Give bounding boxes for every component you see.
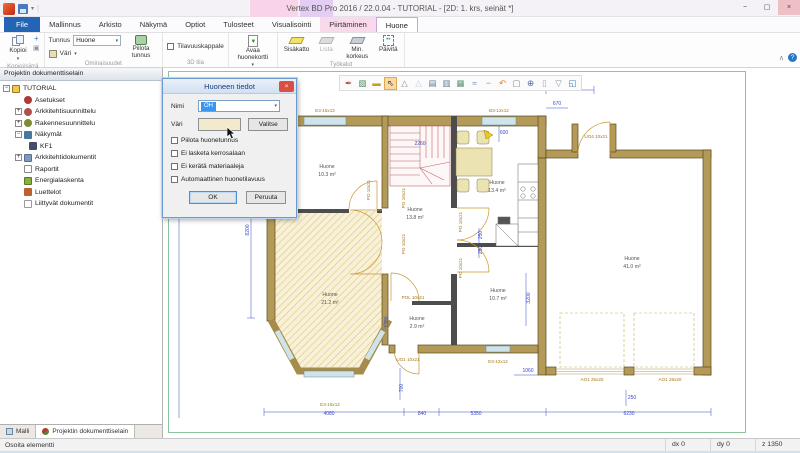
collapse-box-icon[interactable]: − [3, 85, 10, 92]
tilavuuskappale-label: Tilavuuskappale [177, 43, 224, 50]
plan-label: 250 [478, 231, 484, 240]
help-icon[interactable]: ? [788, 53, 797, 62]
plan-label: 10.3 m² [318, 172, 336, 178]
plan-label: 250 [478, 246, 484, 255]
folder-icon [12, 85, 20, 93]
expand-box-icon[interactable]: + [15, 154, 22, 161]
tunnus-label: Tunnus [49, 37, 70, 44]
sisakatto-button[interactable]: Sisäkatto [282, 34, 311, 55]
app-logo-icon [3, 3, 15, 15]
plan-label: PO 10x21 [401, 233, 406, 254]
ribbon-group-kopioi: Kopioi ▾ + ▣ Kopioi/siirrä [2, 33, 45, 67]
living-room-fill [275, 211, 382, 370]
tab-huone[interactable]: Huone [376, 17, 418, 32]
tab-visualisointi[interactable]: Visualisointi [263, 17, 320, 32]
select-box-icon[interactable]: ▧ [356, 77, 369, 90]
plan-label: PO 10x21 [366, 179, 371, 200]
plan-label: AO1 25x20 [659, 377, 682, 382]
plan-label: PO 10x21 [401, 187, 406, 208]
plan-label: Huone [407, 207, 422, 213]
plan-label: 700 [399, 384, 405, 393]
plan-label: 21.2 m² [321, 300, 339, 306]
ok-button[interactable]: OK [189, 191, 237, 204]
close-button[interactable]: × [778, 0, 800, 15]
project-tree: − TUTORIAL Asetukset + Arkkitehtisuunnit… [0, 81, 162, 424]
caret-down-icon: ▾ [274, 103, 277, 109]
kitchen-furniture [456, 130, 493, 192]
plan-label: E3-15x12 [320, 402, 340, 407]
document-icon [24, 200, 32, 208]
ribbon-group-huonekortti: Avaa huonekortti ▾ [229, 33, 278, 67]
filter-icon[interactable]: ▽ [552, 77, 565, 90]
room-name-value: OH [201, 102, 216, 111]
cancel-button[interactable]: Peruuta [246, 191, 286, 204]
plan-label: 13.4 m² [488, 188, 506, 194]
external-view-icon[interactable]: ◱ [566, 77, 579, 90]
plan-label: 4080 [323, 411, 334, 417]
report-icon [24, 165, 32, 173]
plan-label: 5350 [470, 411, 481, 417]
move-button[interactable]: + [33, 35, 40, 43]
tree-item-energialaskenta[interactable]: Energialaskenta [0, 175, 162, 187]
color-chip-icon [49, 50, 57, 58]
garage-doors [556, 313, 694, 374]
tree-item-tutorial[interactable]: − TUTORIAL [0, 83, 162, 95]
lista-button[interactable]: Lista [314, 34, 338, 55]
nimi-label: Nimi [171, 103, 198, 110]
tab-tulosteet[interactable]: Tulosteet [214, 17, 263, 32]
triangle-alt-icon[interactable]: △ [412, 77, 425, 90]
status-hint: Osoita elementti [0, 442, 665, 449]
status-z: z 1350 [755, 439, 800, 451]
list-slab-icon [318, 37, 334, 44]
status-bar: Osoita elementti dx 0 dy 0 z 1350 [0, 438, 800, 451]
maximize-button[interactable]: ▢ [756, 0, 778, 15]
plan-label: E3-15x12 [315, 108, 335, 113]
collapse-ribbon-icon[interactable]: ∧ [779, 54, 784, 62]
plan-label: 6230 [623, 411, 634, 417]
copy-button[interactable]: Kopioi ▾ [6, 34, 30, 63]
tree-item-luettelot[interactable]: Luettelot [0, 187, 162, 199]
project-browser-icon [42, 428, 49, 435]
checkbox-icon [171, 150, 178, 157]
plan-label: 1380 [384, 316, 390, 327]
plan-label: Huone [409, 316, 424, 322]
expand-box-icon[interactable]: + [15, 120, 22, 127]
min-korkeus-button[interactable]: Min. korkeus [341, 34, 373, 61]
sheet-icon[interactable]: ▯ [538, 77, 551, 90]
avaa-huonekortti-button[interactable]: Avaa huonekortti ▾ [233, 34, 273, 70]
room-name-select[interactable]: OH ▾ [198, 100, 280, 112]
checkbox-icon [171, 163, 178, 170]
plan-label: 13.8 m² [406, 215, 424, 221]
quick-access-caret-icon[interactable]: ▾ [31, 5, 34, 12]
plan-label: 2260 [414, 141, 425, 147]
lists-icon [24, 188, 32, 196]
tree-item-liittyvat-dokumentit[interactable]: Liittyvät dokumentit [0, 198, 162, 210]
application-window: ▾ | Vertex BD Pro 2016 / 22.0.04 - TUTOR… [0, 0, 800, 453]
tilavuuskappale-checkbox[interactable] [167, 43, 174, 50]
ceiling-icon [288, 37, 304, 44]
min-height-icon [349, 37, 365, 44]
ribbon-tab-bar: File Mallinnus Arkisto Näkymä Optiot Tul… [0, 17, 800, 33]
layers3-icon[interactable]: ▦ [454, 77, 467, 90]
tree-item-nakymat[interactable]: − Näkymät [0, 129, 162, 141]
tab-arkisto[interactable]: Arkisto [90, 17, 131, 32]
structure-icon [24, 119, 32, 127]
views-icon [24, 131, 32, 139]
paivita-button[interactable]: •• Päivitä [376, 34, 400, 55]
ribbon-corner: ∧ ? [779, 53, 797, 62]
valitse-button[interactable]: Valitse [248, 118, 288, 131]
title-bar: ▾ | Vertex BD Pro 2016 / 22.0.04 - TUTOR… [0, 0, 800, 17]
energy-icon [24, 177, 32, 185]
kitchen-counter [496, 164, 538, 246]
window-controls: − ▢ × [734, 0, 800, 15]
sidebar-tab-bar: Malli Projektin dokumenttiselain [0, 424, 162, 438]
tab-piirtaminen[interactable]: Piirtäminen [320, 17, 376, 32]
plan-label: AO1 25x20 [581, 377, 604, 382]
tree-item-kf1[interactable]: KF1 [0, 141, 162, 153]
staircase [390, 126, 450, 186]
ribbon-group-label: Ominaisuudet [49, 60, 158, 68]
plan-label: 41.0 m² [623, 264, 641, 270]
tree-item-arkkitehtisuunnittelu[interactable]: + Arkkitehtisuunnittelu [0, 106, 162, 118]
huoneen-tiedot-dialog[interactable]: Huoneen tiedot × Nimi OH ▾ Väri Valitse [162, 78, 297, 218]
tab-optiot[interactable]: Optiot [176, 17, 214, 32]
checkbox-ei-lasketa-kerrosalaan[interactable]: Ei lasketa kerrosalaan [171, 150, 288, 157]
caret-down-icon: ▾ [116, 38, 119, 44]
tree-item-arkkitehtidokumentit[interactable]: + Arkkitehtidokumentit [0, 152, 162, 164]
separator: | [37, 4, 39, 13]
tab-mallinnus[interactable]: Mallinnus [40, 17, 90, 32]
cursor-icon[interactable]: ⇖ [384, 77, 397, 90]
ribbon: Kopioi ▾ + ▣ Kopioi/siirrä Tunnus Huone [0, 33, 800, 68]
plan-label: PO 10x21 [458, 257, 463, 278]
status-dx: dx 0 [665, 439, 710, 451]
tab-nakyma[interactable]: Näkymä [131, 17, 177, 32]
zoom-area-icon[interactable]: ▢ [510, 77, 523, 90]
sidebar: Projektin dokumenttiselain − TUTORIAL As… [0, 68, 163, 438]
architecture-icon [24, 108, 32, 116]
checkbox-icon [171, 137, 178, 144]
refresh-icon: •• [383, 35, 394, 46]
triangle-icon[interactable]: △ [398, 77, 411, 90]
plan-label: PO 10x21 [458, 211, 463, 232]
tab-projektin-dokumenttiselain[interactable]: Projektin dokumenttiselain [36, 425, 135, 438]
plan-label: Huone [319, 164, 334, 170]
gear-icon [24, 96, 32, 104]
plan-label: POL 10x21 [402, 295, 425, 300]
hide-tag-icon [135, 35, 147, 45]
ribbon-group-label: 3D tila [167, 59, 224, 67]
plan-label: 840 [418, 411, 427, 417]
status-dy: dy 0 [710, 439, 755, 451]
layers-icon[interactable]: ▤ [426, 77, 439, 90]
ribbon-group-3dtila: Tilavuuskappale 3D tila [163, 33, 229, 67]
plan-label: 250 [628, 395, 637, 401]
plan-label: 8200 [245, 224, 251, 235]
tree-item-raportit[interactable]: Raportit [0, 164, 162, 176]
undo-icon[interactable]: ↶ [496, 77, 509, 90]
plan-label: 10.7 m² [489, 296, 507, 302]
line-icon[interactable]: − [482, 77, 495, 90]
canvas-toolbar: ✒▧▬⇖△△▤▥▦≈−↶▢⊕▯▽◱ [339, 75, 582, 91]
model-icon [6, 428, 13, 435]
vari-label: Väri [171, 121, 198, 128]
plan-label: 1060 [522, 368, 533, 374]
view-icon [29, 142, 37, 150]
tab-file[interactable]: File [4, 17, 40, 32]
zoom-icon[interactable]: ⊕ [524, 77, 537, 90]
checkbox-icon [171, 176, 178, 183]
plan-label: 3200 [526, 292, 532, 303]
expand-box-icon[interactable]: + [15, 108, 22, 115]
checkbox-automaattinen-huonetilavuus[interactable]: Automaattinen huonetilavuus [171, 176, 288, 183]
caret-down-icon: ▾ [74, 51, 77, 57]
piilota-tunnus-button[interactable]: Piilota tunnus [124, 34, 158, 60]
tunnus-combobox[interactable]: Huone ▾ [73, 35, 121, 46]
documents-icon [24, 154, 32, 162]
plan-label: Huone [489, 180, 504, 186]
ribbon-group-tyokalut: Sisäkatto Lista Min. korkeus •• Päivitä … [278, 33, 405, 67]
collapse-box-icon[interactable]: − [15, 131, 22, 138]
waves-icon[interactable]: ≈ [468, 77, 481, 90]
measure-icon[interactable]: ▬ [370, 77, 383, 90]
caret-down-icon: ▾ [17, 56, 20, 63]
room-card-icon [248, 35, 258, 47]
plan-label: Huone [322, 292, 337, 298]
window-title: Vertex BD Pro 2016 / 22.0.04 - TUTORIAL … [200, 0, 600, 17]
plan-label: B3-12x12 [489, 108, 509, 113]
plan-label: 670 [553, 101, 562, 107]
plan-label: 600 [500, 130, 509, 136]
tab-malli[interactable]: Malli [0, 425, 36, 438]
sidebar-header: Projektin dokumenttiselain [0, 68, 162, 81]
mouse-cursor [227, 127, 237, 140]
minimize-button[interactable]: − [734, 0, 756, 15]
plan-label: E3-12x12 [488, 359, 508, 364]
plan-label: Huone [490, 288, 505, 294]
plan-label: UO1 10x21 [396, 357, 420, 362]
dialog-title: Huoneen tiedot [163, 79, 296, 94]
plan-label: 2.9 m² [410, 324, 425, 330]
tree-item-asetukset[interactable]: Asetukset [0, 95, 162, 107]
quick-access-toolbar: ▾ | [0, 0, 39, 17]
save-icon[interactable] [18, 4, 28, 14]
dialog-close-button[interactable]: × [279, 81, 294, 92]
main-area: Projektin dokumenttiselain − TUTORIAL As… [0, 68, 800, 438]
layers2-icon[interactable]: ▥ [440, 77, 453, 90]
plan-label: UO4 10x21 [584, 134, 608, 139]
vari-button[interactable]: Väri ▾ [49, 47, 121, 60]
tree-item-rakennesuunnittelu[interactable]: + Rakennesuunnittelu [0, 118, 162, 130]
copy-icon [12, 35, 25, 47]
duplicate-button[interactable]: ▣ [33, 45, 40, 53]
pin-icon[interactable]: ✒ [342, 77, 355, 90]
plan-label: Huone [624, 256, 639, 262]
ribbon-group-ominaisuudet: Tunnus Huone ▾ Väri ▾ Piilota tunnus [45, 33, 163, 67]
checkbox-ei-kerata-materiaaleja[interactable]: Ei kerätä materiaaleja [171, 163, 288, 170]
